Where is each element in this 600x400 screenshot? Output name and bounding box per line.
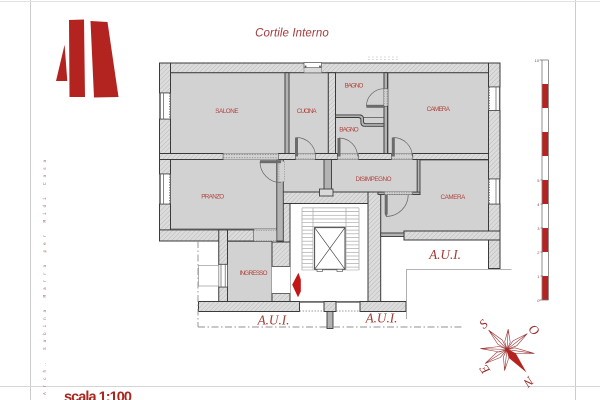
svg-text:PRANZO: PRANZO <box>201 193 224 200</box>
svg-text:BAGNO: BAGNO <box>339 126 358 133</box>
svg-text:INGRESSO: INGRESSO <box>239 270 267 277</box>
svg-text:SALONE: SALONE <box>215 108 238 115</box>
svg-text:A.U.I.: A.U.I. <box>365 311 398 326</box>
svg-text:A.U.I.: A.U.I. <box>257 312 290 327</box>
svg-text:BAGNO: BAGNO <box>344 82 363 89</box>
svg-text:scala 1:100: scala 1:100 <box>64 390 132 400</box>
svg-text:A.U.I.: A.U.I. <box>428 247 461 262</box>
svg-text:CAMERA: CAMERA <box>441 194 467 201</box>
svg-text:DISIMPEGNO: DISIMPEGNO <box>356 176 392 183</box>
svg-text:Arch. Sabina Marra per Midi Ca: Arch. Sabina Marra per Midi Casa <box>42 155 48 395</box>
svg-text:10: 10 <box>535 58 540 63</box>
svg-text:Cortile Interno: Cortile Interno <box>255 28 329 40</box>
svg-text:CUCINA: CUCINA <box>297 108 318 115</box>
svg-text:CAMERA: CAMERA <box>427 106 451 113</box>
